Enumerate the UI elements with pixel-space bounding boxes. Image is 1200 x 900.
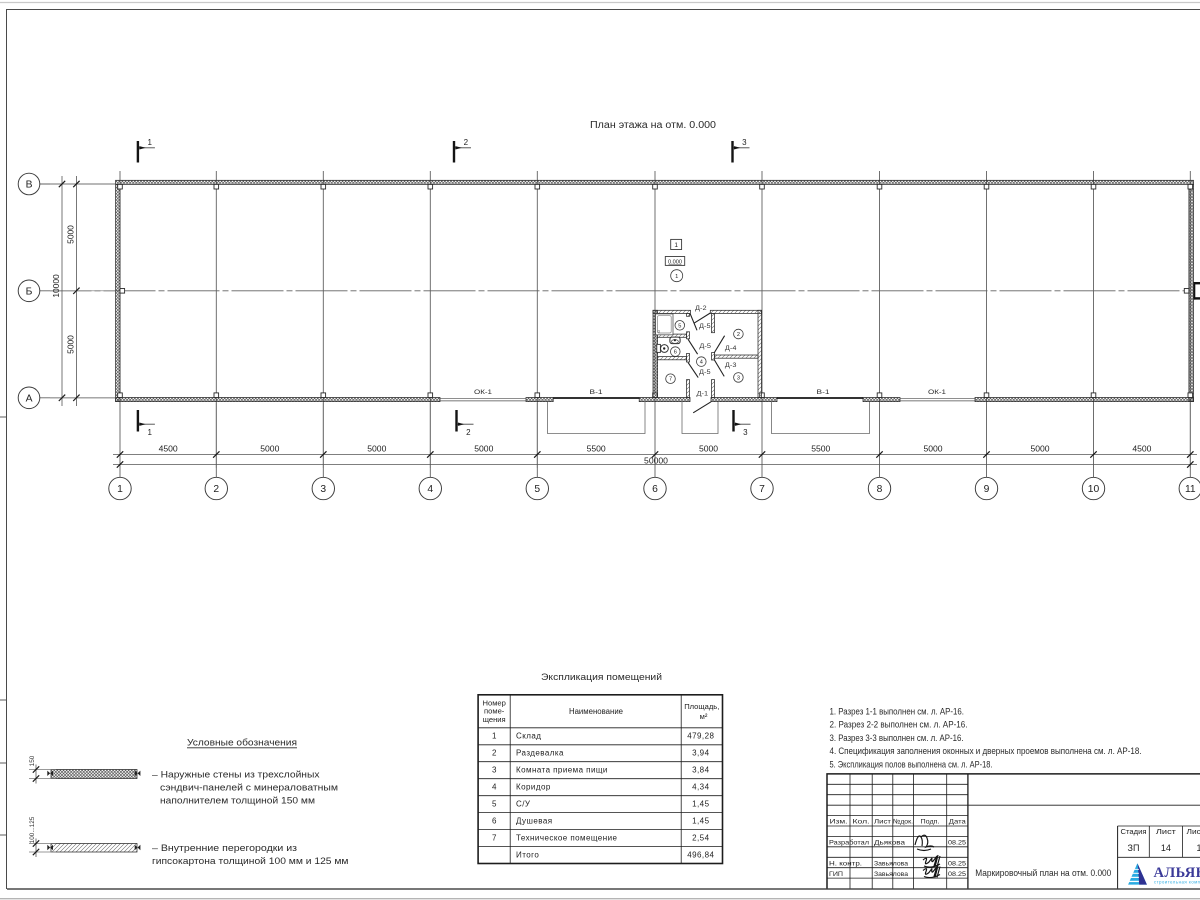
svg-text:2: 2 xyxy=(466,428,471,437)
svg-text:Комната приема пищи: Комната приема пищи xyxy=(516,766,608,775)
svg-text:В-1: В-1 xyxy=(817,389,830,396)
svg-text:Коридор: Коридор xyxy=(516,783,551,792)
svg-text:4,34: 4,34 xyxy=(692,783,709,792)
svg-text:Кол.: Кол. xyxy=(853,819,870,826)
svg-text:10000: 10000 xyxy=(51,274,61,298)
svg-text:2,54: 2,54 xyxy=(692,833,709,842)
svg-text:479,28: 479,28 xyxy=(687,732,714,741)
svg-text:1: 1 xyxy=(117,484,123,495)
svg-text:2. Разрез 2-2 выполнен см. л.: 2. Разрез 2-2 выполнен см. л. АР-16. xyxy=(830,720,968,730)
svg-text:4. Спецификация заполнения око: 4. Спецификация заполнения оконных и две… xyxy=(830,746,1142,756)
svg-text:1: 1 xyxy=(147,428,152,437)
svg-text:ГИП: ГИП xyxy=(829,871,843,878)
svg-text:1,45: 1,45 xyxy=(692,817,709,826)
svg-text:150: 150 xyxy=(29,755,36,766)
svg-text:Наименование: Наименование xyxy=(569,707,623,716)
svg-text:3: 3 xyxy=(492,766,497,775)
svg-text:2: 2 xyxy=(464,138,469,147)
svg-text:Изм.: Изм. xyxy=(830,819,848,826)
svg-text:3,84: 3,84 xyxy=(692,766,709,775)
svg-text:м²: м² xyxy=(700,712,708,721)
svg-text:1. Разрез 1-1 выполнен см. л.: 1. Разрез 1-1 выполнен см. л. АР-16. xyxy=(830,706,965,716)
svg-text:Б: Б xyxy=(26,287,33,298)
svg-text:Д-4: Д-4 xyxy=(725,345,737,352)
svg-text:Дата: Дата xyxy=(949,819,966,826)
svg-text:100...125: 100...125 xyxy=(29,816,36,843)
svg-text:Экспликация помещений: Экспликация помещений xyxy=(541,672,662,683)
svg-text:2: 2 xyxy=(213,484,219,495)
svg-text:– Наружные стены из трехслойны: – Наружные стены из трехслойных xyxy=(152,770,320,780)
svg-text:План этажа на отм. 0.000: План этажа на отм. 0.000 xyxy=(590,120,717,131)
svg-text:Лист: Лист xyxy=(874,819,891,826)
svg-text:Завьялова: Завьялова xyxy=(874,861,908,868)
svg-text:6: 6 xyxy=(492,817,497,826)
svg-text:строительная компания: строительная компания xyxy=(1154,879,1200,884)
svg-text:7: 7 xyxy=(492,833,497,842)
svg-text:5: 5 xyxy=(534,484,540,495)
svg-text:Д-5: Д-5 xyxy=(699,369,711,376)
svg-text:гипсокартона толщиной 100 мм и: гипсокартона толщиной 100 мм и 125 мм xyxy=(152,856,349,866)
svg-text:ЗП: ЗП xyxy=(1128,843,1140,853)
svg-text:8: 8 xyxy=(877,484,883,495)
svg-text:5000: 5000 xyxy=(923,444,942,454)
svg-text:Маркировочный план на отм. 0.0: Маркировочный план на отм. 0.000 xyxy=(975,868,1111,878)
svg-text:Д-1: Д-1 xyxy=(697,391,709,398)
svg-text:50000: 50000 xyxy=(644,455,668,465)
svg-text:Дьякова: Дьякова xyxy=(874,840,905,847)
svg-text:4500: 4500 xyxy=(1132,444,1151,454)
svg-text:3. Разрез 3-3 выполнен см. л.: 3. Разрез 3-3 выполнен см. л. АР-16. xyxy=(830,733,964,743)
svg-text:496,84: 496,84 xyxy=(687,850,714,859)
svg-text:4: 4 xyxy=(427,484,433,495)
svg-text:7: 7 xyxy=(669,377,672,383)
svg-text:Площадь,: Площадь, xyxy=(684,702,719,711)
svg-text:Душевая: Душевая xyxy=(516,817,553,826)
svg-text:№док.: №док. xyxy=(893,819,913,826)
svg-text:2: 2 xyxy=(737,332,740,338)
svg-text:5. Экспликация полов выполнена: 5. Экспликация полов выполнена см. л. АР… xyxy=(830,760,993,770)
svg-text:5000: 5000 xyxy=(65,335,75,354)
svg-text:3: 3 xyxy=(742,138,747,147)
svg-text:С/У: С/У xyxy=(516,800,531,809)
svg-text:ОК-1: ОК-1 xyxy=(474,389,492,396)
svg-text:ОК-1: ОК-1 xyxy=(928,389,946,396)
svg-text:В-1: В-1 xyxy=(590,389,603,396)
svg-text:Листов: Листов xyxy=(1187,827,1200,836)
svg-text:2: 2 xyxy=(492,749,497,758)
svg-text:1: 1 xyxy=(147,138,152,147)
svg-text:Техническое помещение: Техническое помещение xyxy=(516,833,617,842)
svg-text:Стадия: Стадия xyxy=(1121,827,1147,836)
svg-text:5000: 5000 xyxy=(65,225,75,244)
svg-text:Подп.: Подп. xyxy=(921,819,940,826)
svg-text:Завьялова: Завьялова xyxy=(874,871,908,878)
svg-text:5: 5 xyxy=(678,323,681,329)
svg-text:наполнителем толщиной 150 мм: наполнителем толщиной 150 мм xyxy=(160,796,315,806)
svg-text:Д-2: Д-2 xyxy=(695,305,707,312)
svg-text:1: 1 xyxy=(674,242,678,249)
svg-text:Раздевалка: Раздевалка xyxy=(516,749,564,758)
svg-text:4: 4 xyxy=(492,783,497,792)
svg-text:Д-5: Д-5 xyxy=(699,323,711,330)
svg-text:11: 11 xyxy=(1185,484,1196,495)
svg-text:щения: щения xyxy=(483,715,506,724)
svg-text:1: 1 xyxy=(492,732,497,741)
svg-text:Д-5: Д-5 xyxy=(699,343,711,350)
svg-text:1,45: 1,45 xyxy=(692,800,709,809)
svg-text:3: 3 xyxy=(743,428,748,437)
svg-text:Условные обозначения: Условные обозначения xyxy=(187,738,297,748)
svg-text:08.25: 08.25 xyxy=(948,871,966,878)
svg-text:В: В xyxy=(26,180,33,191)
svg-text:3: 3 xyxy=(320,484,326,495)
svg-text:3,94: 3,94 xyxy=(692,749,709,758)
svg-text:А: А xyxy=(26,394,33,405)
svg-text:1: 1 xyxy=(675,274,678,280)
svg-text:08.25: 08.25 xyxy=(948,840,966,847)
svg-text:5000: 5000 xyxy=(1030,444,1049,454)
svg-text:14: 14 xyxy=(1161,843,1171,853)
svg-text:1: 1 xyxy=(1197,843,1200,853)
svg-text:Разработал: Разработал xyxy=(829,839,869,847)
svg-text:10: 10 xyxy=(1088,484,1100,495)
svg-text:08.25: 08.25 xyxy=(948,861,966,868)
svg-text:5500: 5500 xyxy=(587,444,606,454)
svg-text:7: 7 xyxy=(759,484,765,495)
svg-text:5000: 5000 xyxy=(474,444,493,454)
svg-text:4: 4 xyxy=(700,360,703,366)
svg-text:5: 5 xyxy=(492,800,497,809)
svg-text:Н. контр.: Н. контр. xyxy=(829,861,862,868)
svg-text:6: 6 xyxy=(674,350,677,356)
svg-text:5000: 5000 xyxy=(367,444,386,454)
svg-text:4500: 4500 xyxy=(159,444,178,454)
svg-text:5000: 5000 xyxy=(699,444,718,454)
svg-text:5500: 5500 xyxy=(811,444,830,454)
svg-text:Лист: Лист xyxy=(1156,827,1177,836)
svg-text:Д-3: Д-3 xyxy=(725,362,737,369)
svg-text:9: 9 xyxy=(984,484,990,495)
svg-text:6: 6 xyxy=(652,484,658,495)
svg-text:– Внутренние перегородки из: – Внутренние перегородки из xyxy=(152,843,297,853)
svg-text:сэндвич-панелей с минераловатн: сэндвич-панелей с минераловатным xyxy=(160,783,338,793)
svg-text:5000: 5000 xyxy=(260,444,279,454)
svg-text:Итого: Итого xyxy=(516,850,539,859)
svg-text:3: 3 xyxy=(737,375,740,381)
svg-text:Склад: Склад xyxy=(516,732,541,741)
